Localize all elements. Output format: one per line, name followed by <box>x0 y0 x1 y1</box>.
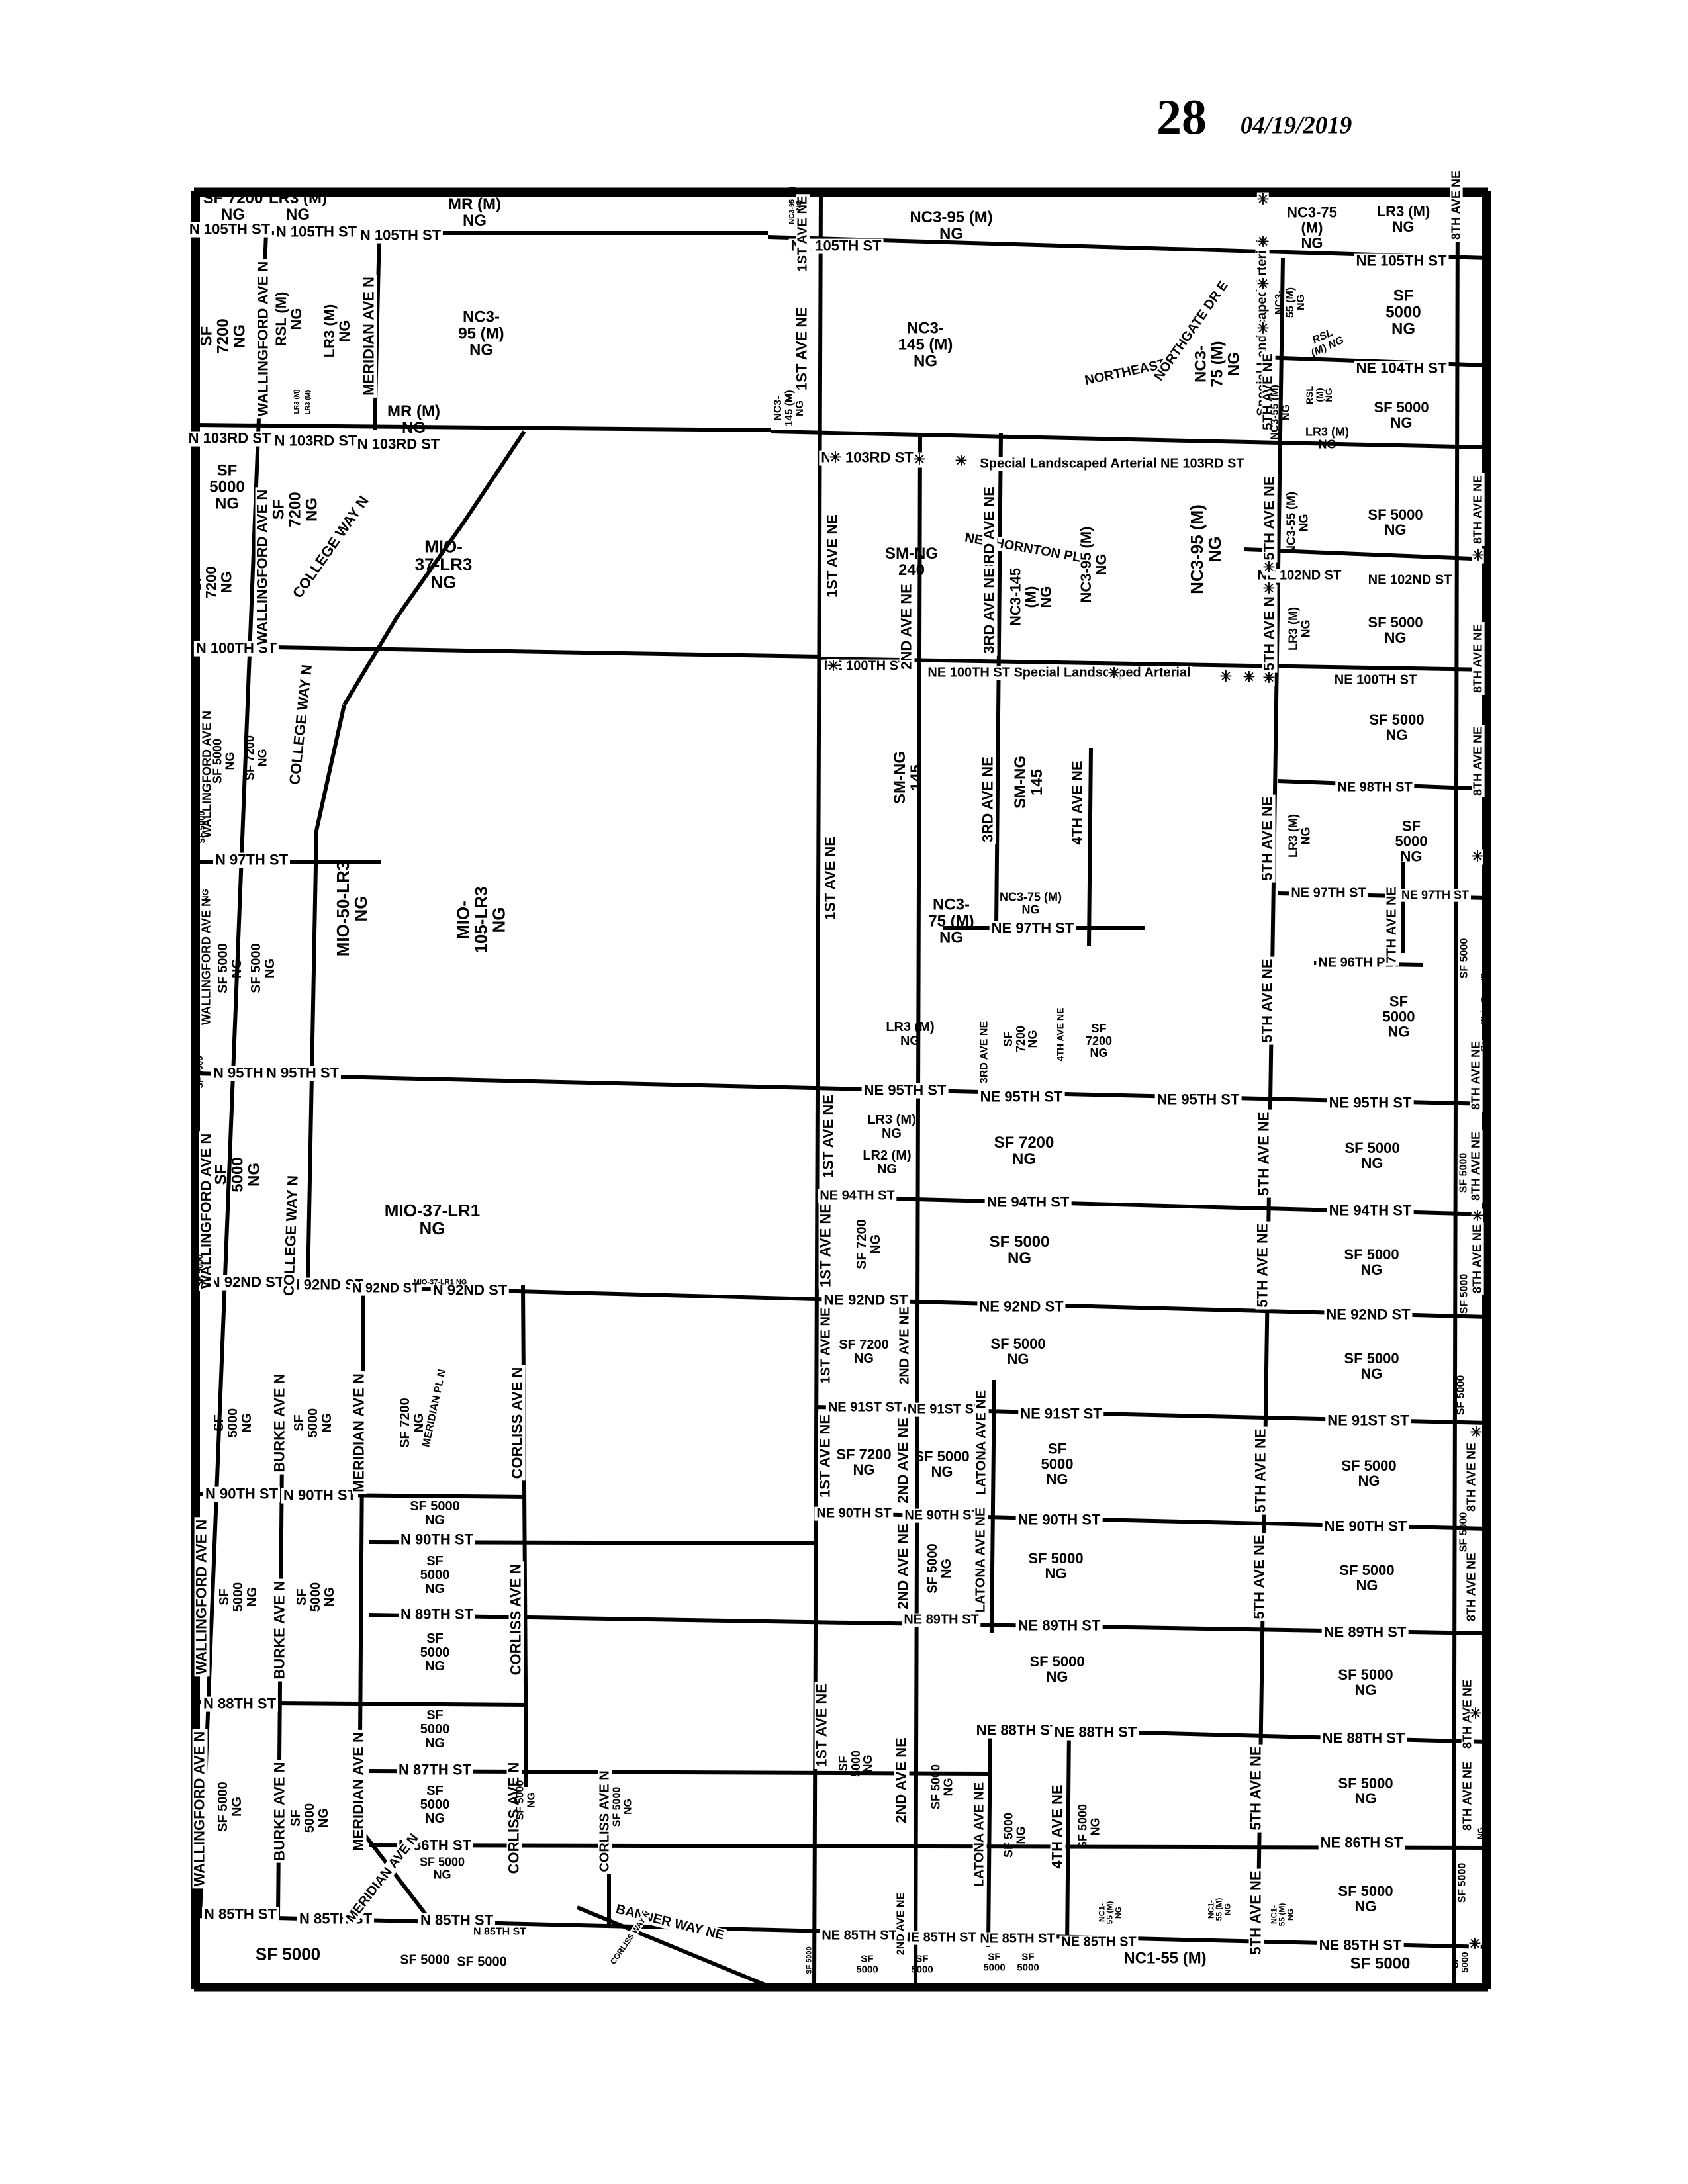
zone-label: NC3-95 (M) NG <box>910 210 992 243</box>
street-label: NE 88TH ST <box>1321 1731 1407 1747</box>
street-label: NE 95TH ST <box>862 1083 949 1099</box>
street-label: 5TH AVE NE <box>1249 1744 1264 1832</box>
street-label: 1ST AVE NE <box>795 305 810 392</box>
asterisk-mark: ✳ <box>1257 322 1269 337</box>
street-label: MERIDIAN AVE N <box>362 275 377 398</box>
zone-label: SF 5000 NG <box>214 1157 263 1192</box>
zone-label: LR3 (M) <box>294 390 301 414</box>
zone-label: NC3- 145 (M) NG <box>898 321 953 371</box>
street-label: NE 92ND ST <box>821 1293 910 1308</box>
street-label: MERIDIAN AVE N <box>352 1371 367 1494</box>
zone-label: SF 5000 NG <box>1368 615 1423 646</box>
street-label: N 89TH ST <box>399 1608 475 1623</box>
asterisk-mark: ✳ <box>1263 561 1275 576</box>
street-label: NE 85TH ST <box>1317 1938 1404 1954</box>
street-label: CORLISS AVE N <box>598 1768 612 1874</box>
zone-label: SF 5000 <box>195 1056 205 1088</box>
asterisk-mark: ✳ <box>1257 235 1269 250</box>
street-label: NE 85TH ST <box>899 1931 978 1945</box>
zone-label: SF 5000 <box>457 1956 507 1970</box>
street-label: 5TH AVE NE <box>1252 1533 1268 1621</box>
asterisk-mark: ✳ <box>1257 193 1269 208</box>
zone-label: SF 7200 NG <box>271 492 321 527</box>
zone-label: SF 5000 NG <box>420 1709 450 1750</box>
street-label: NE 105TH ST <box>1354 254 1449 269</box>
street-label: N 97TH ST <box>213 853 290 868</box>
street-label: LATONA AVE NE <box>974 1506 988 1615</box>
asterisk-mark: ✳ <box>1263 582 1275 597</box>
street-label: NE 97TH ST <box>1289 887 1368 901</box>
street-label: NE 91ST ST <box>906 1403 984 1417</box>
zone-label: SF 5000 NG <box>1344 1248 1399 1278</box>
zone-label: LR3 (M) NG <box>886 1021 934 1048</box>
zone-label: SF 5000 <box>197 811 207 843</box>
street-label: N 85TH ST <box>471 1927 528 1938</box>
street-label: 8TH AVE NE <box>1466 1551 1478 1623</box>
zone-label: SF 5000 <box>1017 1952 1039 1972</box>
street-label: NE 85TH ST <box>1059 1936 1138 1950</box>
street-label: NE 89TH ST <box>902 1614 980 1627</box>
street-label: NE 85TH ST <box>978 1933 1056 1946</box>
street-label: 7TH AVE NE <box>1385 885 1399 966</box>
street-label: NE 88TH ST <box>974 1723 1061 1739</box>
zone-label: NC1-55 (M) <box>1123 1951 1206 1968</box>
street-label: 3RD AVE NE <box>981 754 996 844</box>
zone-label: RSL (M) NG <box>274 292 305 347</box>
street-label: N 103RD ST <box>187 432 273 447</box>
zone-label: NC3-95 (M) NG <box>1079 527 1109 603</box>
zone-label: MIO- 105-LR3 NG <box>454 886 508 953</box>
street-label: WALLINGFORD AVE N <box>256 259 271 419</box>
asterisk-mark: ✳ <box>1472 850 1483 865</box>
map-line <box>194 188 1488 194</box>
zone-label: SF 5000 <box>400 1954 450 1968</box>
zone-label: SF 5000 <box>1350 1956 1411 1973</box>
street-label: WALLINGFORD AVE N <box>193 1729 208 1889</box>
street-label: NE 94TH ST <box>1327 1204 1414 1219</box>
street-label: 4TH AVE NE <box>1056 1006 1066 1064</box>
street-label: N 103RD ST <box>273 434 359 449</box>
street-label: 3RD AVE NE <box>982 566 998 656</box>
zone-label: RSL (M) NG <box>1305 386 1334 404</box>
zone-label: SF 5000 NG <box>837 1751 874 1777</box>
zone-label: SF 5000 NG <box>929 1764 954 1809</box>
street-label: WALLINGFORD AVE N <box>195 1518 210 1677</box>
street-label: 2ND AVE NE <box>896 1522 912 1612</box>
zone-label: SF 5000 NG <box>1041 1442 1074 1488</box>
map-line <box>191 191 197 1989</box>
street-label: WALLINGFORD AVE N <box>201 896 213 1027</box>
street-label: NE 102ND ST <box>1366 574 1454 588</box>
map-line <box>1401 862 1405 953</box>
asterisk-mark: ✳ <box>1470 1707 1481 1722</box>
zone-label: SF 5000 NG <box>1076 1804 1101 1849</box>
street-label: N 105TH ST <box>274 225 359 240</box>
zone-label: SF 5000 NG <box>1369 713 1424 743</box>
zone-label: SF 7200 NG <box>244 735 268 780</box>
zone-label: Green Strip Type III <box>1479 974 1489 1052</box>
street-label: WALLINGFORD AVE N <box>256 488 271 647</box>
street-label: NE 89TH ST <box>1322 1625 1409 1641</box>
zone-label: SF 7200 NG <box>836 1447 891 1478</box>
zone-label: SM-NG 240 <box>885 546 938 579</box>
zone-label: SF 5000 NG <box>191 879 209 911</box>
street-label: CORLISS AVE N <box>510 1365 526 1481</box>
zone-label: SF 5000 <box>856 1954 878 1974</box>
street-label: 2ND AVE NE <box>898 1304 912 1387</box>
street-label: NE 91ST ST <box>1018 1407 1103 1422</box>
street-label: N 103RD ST <box>355 437 442 453</box>
street-label: NE 90TH ST <box>814 1507 893 1521</box>
street-label: NE 90TH ST <box>1016 1513 1103 1528</box>
asterisk-mark: ✳ <box>1470 1426 1482 1441</box>
street-label: NE 96TH PL <box>1316 956 1395 970</box>
street-label: 5TH AVE NE <box>1249 1868 1264 1956</box>
street-label: 5TH AVE NE <box>1256 1221 1271 1309</box>
street-label: 8TH AVE NE <box>1472 622 1485 695</box>
street-label: 1ST AVE NE <box>819 1202 834 1289</box>
street-label: 8TH AVE NE <box>1466 1441 1478 1514</box>
street-label: N 105TH ST <box>358 228 443 244</box>
asterisk-mark: ✳ <box>1257 277 1269 293</box>
street-label: NE 92ND ST <box>977 1300 1065 1315</box>
zone-label: SF 5000 NG <box>1344 1141 1399 1171</box>
zone-label: SF 5000 NG <box>216 1782 244 1832</box>
zone-label: SF 5000 NG <box>293 1408 334 1438</box>
zone-label: MIO-37-LR1 NG <box>385 1202 480 1238</box>
zone-label: LR2 (M) NG <box>863 1149 911 1177</box>
zone-label: SF 5000 NG <box>216 943 244 993</box>
zone-label: SF 5000 <box>195 1254 205 1287</box>
zone-label: SF 5000 <box>1456 1375 1468 1415</box>
zone-label: NC1- 55 (M) NG <box>1270 1903 1294 1927</box>
street-label: NE 89TH ST <box>1016 1619 1103 1634</box>
street-label: BURKE AVE N <box>273 1578 288 1681</box>
zone-label: NC3- 55 (M) NG <box>1274 287 1307 318</box>
zone-label: SF 7200 NG <box>1086 1023 1112 1060</box>
street-label: 3RD AVE NE <box>980 1019 991 1085</box>
street-label: 1ST AVE NE <box>820 1306 833 1385</box>
street-label: 4TH AVE NE <box>1051 1782 1066 1870</box>
zone-label: NC3-95 (M) NG <box>1188 504 1224 594</box>
street-label: MERIDIAN AVE N <box>352 1730 367 1853</box>
zone-label: SF 5000 NG <box>612 1787 633 1827</box>
zone-label: SF 5000 <box>1458 1863 1469 1903</box>
zone-label: SF 5000 NG <box>211 739 236 784</box>
zone-label: NC3-55 (M) NG <box>1270 385 1291 440</box>
street-label: N 95TH ST <box>264 1066 341 1081</box>
zoning-map: N 105TH STN 105TH STN 105TH STNE 105TH S… <box>0 0 1688 2184</box>
zone-label: SF 5000 NG <box>1338 1668 1393 1698</box>
street-label: 2ND AVE NE <box>894 1735 910 1825</box>
zone-label: LR3 (M) NG <box>1305 426 1349 450</box>
street-label: 8TH AVE NE <box>1470 1130 1483 1203</box>
street-label: NE 97TH ST <box>990 921 1076 936</box>
street-label: 8TH AVE NE <box>1462 1760 1474 1833</box>
zone-label: LR3 (M) NG <box>322 304 353 358</box>
asterisk-mark: ✳ <box>827 659 839 674</box>
zone-label: SF 5000 NG <box>1368 508 1423 538</box>
zone-label: SF 5000 NG <box>420 1632 450 1673</box>
street-label: NE 94TH ST <box>818 1189 896 1203</box>
street-label: N 92ND ST <box>350 1282 422 1296</box>
asterisk-mark: ✳ <box>955 454 967 469</box>
zone-label: SF 5000 <box>1460 938 1471 978</box>
street-label: NE 90TH ST <box>1323 1520 1409 1535</box>
zone-label: SF 7200 NG <box>994 1135 1055 1168</box>
street-label: N 87TH ST <box>397 1763 473 1778</box>
street-label: NE 97TH ST <box>1399 889 1471 902</box>
street-label: BURKE AVE N <box>273 1760 288 1862</box>
zone-label: SF 5000 NG <box>420 1856 465 1880</box>
street-label: NE 104TH ST <box>1354 361 1449 377</box>
zone-label: SF 5000 <box>256 1945 320 1963</box>
street-label: N 90TH ST <box>281 1488 358 1504</box>
street-label: 5TH AVE NE <box>1260 794 1276 882</box>
asterisk-mark: ✳ <box>1472 549 1484 564</box>
zone-label: SF 7200 NG <box>1002 1026 1039 1052</box>
street-label: N 105TH ST <box>187 222 272 238</box>
zone-label: SF 5000 NG <box>1374 400 1429 431</box>
street-label: 3RD AVE NE <box>982 484 998 574</box>
street-label: NE 95TH ST <box>1327 1096 1414 1111</box>
asterisk-mark: ✳ <box>1243 670 1255 686</box>
zone-label: SF 5000 NG <box>250 943 277 993</box>
zone-label: NC3-75 (M) NG <box>1287 206 1337 251</box>
zone-label: NC3- 95 (M) NG <box>458 310 504 359</box>
zone-label: SF 5000 NG <box>289 1803 330 1833</box>
asterisk-mark: ✳ <box>914 453 925 468</box>
street-label: BURKE AVE N <box>273 1371 288 1474</box>
street-label: 1ST AVE NE <box>823 835 839 922</box>
zone-label: SF 5000 NG <box>1383 995 1415 1040</box>
zone-label: SF 5000 NG <box>914 1449 969 1480</box>
zone-label: SF 5000 NG <box>1028 1551 1083 1582</box>
zone-label: SF 5000 NG <box>515 1780 537 1820</box>
zone-label: LR3 (M) NG <box>1377 205 1430 235</box>
street-label: NE 95TH ST <box>1155 1093 1242 1108</box>
zone-label: SF 7200 NG <box>839 1338 889 1366</box>
zone-label: SF 5000 <box>911 1954 933 1974</box>
street-label: NE 90TH ST <box>902 1509 981 1523</box>
zone-label: NC1- 55 (M) NG <box>1098 1901 1122 1925</box>
zone-label: NG <box>1477 1827 1485 1839</box>
zone-label: SF 5000 <box>1460 1274 1471 1314</box>
zone-label: SF 5000 NG <box>1341 1459 1396 1489</box>
street-label: 1ST AVE NE <box>821 1093 837 1180</box>
street-label: 8TH AVE NE <box>1472 1222 1484 1295</box>
street-label: LATONA AVE NE <box>973 1780 987 1889</box>
zone-label: SF 5000 NG <box>209 463 244 513</box>
zone-label: SF 5000 NG <box>410 1500 460 1527</box>
zone-label: LR3 (M) NG <box>1287 814 1311 858</box>
zone-label: SF 5000 NG <box>218 1582 259 1612</box>
zoning-map-page: 28 04/19/2019 N 105TH STN 105TH STN 105T… <box>0 0 1688 2184</box>
street-label: 5TH AVE NE <box>1262 474 1278 562</box>
street-label: NE 88TH ST <box>1053 1725 1139 1741</box>
zone-label: NC3- 145 (M) NG <box>773 390 806 426</box>
zone-label: SF 7200 NG <box>189 567 235 599</box>
asterisk-mark: ✳ <box>1469 1937 1481 1952</box>
zone-label: MR (M) NG <box>387 404 440 437</box>
asterisk-mark: ✳ <box>1263 671 1275 686</box>
zone-label: LR3 (M) NG <box>1287 607 1311 651</box>
zone-label: SF 5000 <box>1459 1153 1470 1193</box>
asterisk-mark: ✳ <box>1220 670 1232 685</box>
street-label: 8TH AVE NE <box>1450 169 1463 242</box>
street-label: 1ST AVE NE <box>815 1682 830 1769</box>
zone-label: MIO- 37-LR3 NG <box>415 537 473 591</box>
zone-label: SF 5000 NG <box>1344 1351 1399 1382</box>
zone-label: LR3 (M) NG <box>269 191 327 224</box>
street-label: 1ST AVE NE <box>825 512 841 600</box>
zone-label: SF 5000 NG <box>420 1784 450 1825</box>
street-label: 5TH AVE NE <box>1262 584 1278 672</box>
asterisk-mark: ✳ <box>1108 666 1120 682</box>
street-label: N 90TH ST <box>399 1533 475 1548</box>
street-label: NE 86TH ST <box>1319 1836 1405 1851</box>
zone-label: SF 5000 NG <box>1338 1776 1393 1807</box>
street-label: 5TH AVE NE <box>1257 1109 1272 1197</box>
street-label: NE 94TH ST <box>985 1195 1072 1210</box>
zone-label: MIO-50-LR3 NG <box>334 861 370 956</box>
zone-label: SF 5000 NG <box>1002 1813 1027 1858</box>
zone-label: NC1- 55 (M) NG <box>1207 1898 1231 1921</box>
street-label: 8TH AVE NE <box>1472 725 1485 797</box>
street-label: NE 91ST ST <box>1325 1414 1411 1429</box>
zone-label: SF 5000 NG <box>1029 1655 1084 1685</box>
street-label: 5TH AVE NE <box>1260 956 1276 1044</box>
street-label: N 85TH ST <box>202 1907 279 1923</box>
zone-label: NC3-55 (M) NG <box>1285 492 1309 554</box>
street-label: 1ST AVE NE <box>818 1412 833 1500</box>
zone-label: SF 5000 NG <box>420 1555 450 1596</box>
zone-label: MR (M) NG <box>448 197 501 230</box>
street-label: NE 91ST ST <box>826 1401 904 1415</box>
zone-label: SF 7200 NG <box>203 191 263 224</box>
street-label: CORLISS AVE N <box>509 1562 524 1678</box>
zone-label: SF 5000 NG <box>1338 1884 1393 1915</box>
street-label: 5TH AVE NE <box>1254 1426 1269 1514</box>
zone-label: NC3-95 (M) NG <box>789 186 804 224</box>
zone-label: NC3-145 (M) NG <box>1009 568 1055 626</box>
zone-label: SF 5000 NG <box>1385 289 1421 338</box>
street-label: 2ND AVE NE <box>900 582 915 672</box>
zone-label: NC3- 75 (M) NG <box>928 897 974 947</box>
street-label: NE 92ND ST <box>1324 1308 1412 1323</box>
zone-label: SF 5000 NG <box>1395 819 1428 865</box>
zone-label: SF 5000 NG <box>1339 1563 1394 1594</box>
map-line <box>194 1986 1488 1992</box>
street-label: 2ND AVE NE <box>896 1416 912 1506</box>
street-label: N 92ND ST <box>208 1275 286 1291</box>
street-label: Special Landscaped Arterial NE 103RD ST <box>978 457 1246 471</box>
zone-label: SF 5000 <box>1450 1952 1469 1972</box>
zone-label: LR3 (M) NG <box>867 1113 915 1141</box>
street-label: NE 100TH ST <box>1333 674 1419 688</box>
street-label: N 90TH ST <box>203 1487 280 1502</box>
street-label: NE 95TH ST <box>978 1090 1065 1105</box>
street-label: NE 100TH ST Special Landscaped Arterial <box>925 666 1192 680</box>
zone-label: SF 7200 NG <box>855 1219 883 1269</box>
zone-label: MIO-37-LR1 NG <box>414 1279 467 1286</box>
zone-label: SM-NG 145 <box>892 751 925 804</box>
zone-label: SF 5000 NG <box>990 1234 1050 1267</box>
zone-label: NC3-75 (M) NG <box>1000 891 1062 915</box>
street-label: N 88TH ST <box>201 1697 278 1712</box>
map-line <box>1485 191 1491 1989</box>
street-label: LATONA AVE NE <box>975 1388 989 1498</box>
zone-label: SM-NG 145 <box>1013 756 1046 809</box>
zone-label: SF 5000 <box>1459 1512 1470 1552</box>
zone-label: SF 5000 NG <box>295 1582 336 1612</box>
street-label: 2ND AVE NE <box>896 1891 908 1957</box>
zone-label: SF 5000 <box>806 1946 813 1974</box>
zone-label: SF 5000 NG <box>990 1337 1045 1367</box>
zone-label: LR3 (M) <box>305 390 312 415</box>
asterisk-mark: ✳ <box>1472 1209 1483 1224</box>
zone-label: SF 5000 <box>983 1952 1005 1972</box>
street-label: 8TH AVE NE <box>1472 473 1485 546</box>
asterisk-mark: ✳ <box>829 451 841 466</box>
zone-label: SF 7200 NG <box>199 318 249 353</box>
street-label: NE 98TH ST <box>1335 781 1414 795</box>
zone-label: SF 7200 NG <box>399 1398 426 1448</box>
zone-label: SF 5000 NG <box>212 1408 254 1438</box>
zone-label: SF 5000 NG <box>926 1543 954 1594</box>
zone-label: NC3- 75 (M) NG <box>1194 341 1243 387</box>
street-label: NE 85TH ST <box>820 1929 898 1943</box>
street-label: 4TH AVE NE <box>1070 758 1086 846</box>
